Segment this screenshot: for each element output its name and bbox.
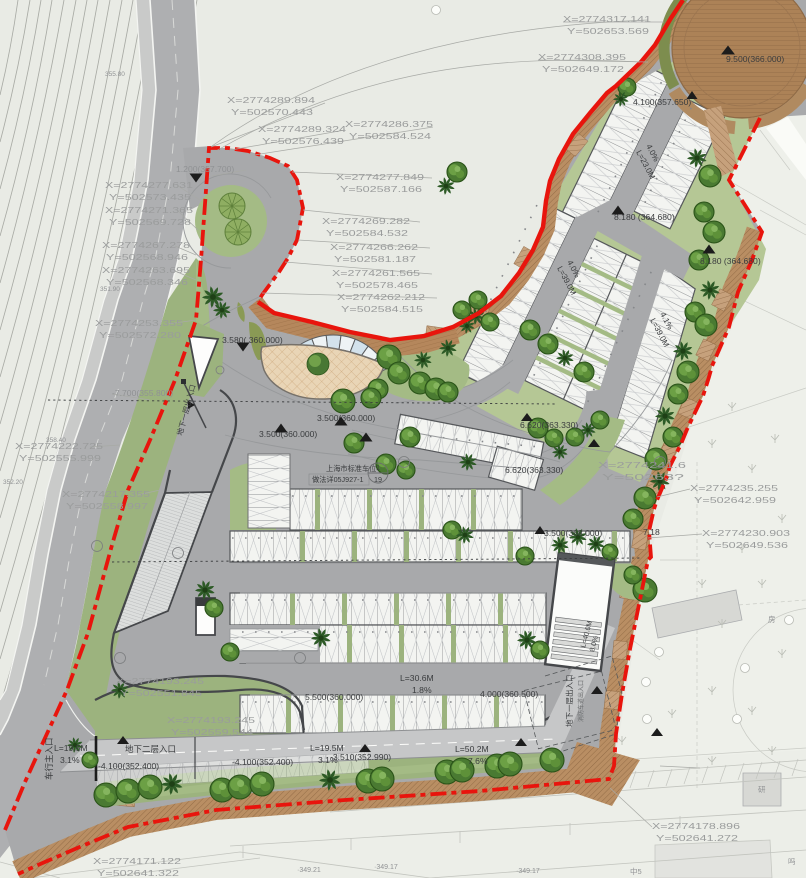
svg-text:Y=502576.439: Y=502576.439 [262,136,344,146]
svg-text:X=2774235.255: X=2774235.255 [690,483,778,493]
svg-text:3.500(360.000): 3.500(360.000) [259,429,317,439]
svg-text:-4.100(352.400): -4.100(352.400) [98,761,159,771]
svg-text:Y=502570.443: Y=502570.443 [231,107,313,117]
svg-text:X=2774277.849: X=2774277.849 [336,172,424,182]
svg-text:X=2774263.695: X=2774263.695 [102,265,190,275]
svg-text:X=2774178.896: X=2774178.896 [652,821,740,831]
svg-text:X=2774193.245: X=2774193.245 [167,715,255,725]
svg-text:X=2774277.631: X=2774277.631 [105,180,193,190]
svg-text:6.620(363.330): 6.620(363.330) [520,420,578,430]
svg-text:X=2774317.141: X=2774317.141 [563,14,651,24]
svg-text:Y=502573.435: Y=502573.435 [109,192,191,202]
svg-text:7.18: 7.18 [643,527,660,537]
svg-text:地下二层入口: 地下二层入口 [125,744,176,754]
svg-text:Y=502572.280: Y=502572.280 [99,330,181,340]
svg-text:Y=502584.515: Y=502584.515 [341,304,423,314]
svg-text:Y=502555.999: Y=502555.999 [19,453,101,463]
svg-text:4.100(357.650): 4.100(357.650) [633,97,691,107]
svg-text:6.620(363.330): 6.620(363.330) [505,465,563,475]
svg-text:Y=502578.465: Y=502578.465 [336,280,418,290]
svg-text:352.20: 352.20 [3,479,23,486]
svg-text:X=2774289.894: X=2774289.894 [227,95,315,105]
svg-text:Y=502649.536: Y=502649.536 [706,540,788,550]
svg-text:研: 研 [758,785,766,794]
svg-text:Y=502581.187: Y=502581.187 [334,254,416,264]
svg-text:Y=50263?: Y=50263? [602,472,685,482]
svg-text:Y=502559.544: Y=502559.544 [171,727,253,737]
svg-text:X=2774271.365: X=2774271.365 [105,205,193,215]
svg-text:·349.17: ·349.17 [374,864,398,871]
svg-text:3.580( 360.000): 3.580( 360.000) [222,335,283,345]
svg-text:Y=502587.166: Y=502587.166 [340,184,422,194]
svg-text:358.40: 358.40 [46,437,66,444]
svg-text:Y=502584.524: Y=502584.524 [349,131,431,141]
svg-text:9.500(366.000): 9.500(366.000) [726,54,784,64]
svg-text:车行主入口: 车行主入口 [44,737,54,780]
svg-text:X=2774262.212: X=2774262.212 [337,292,425,302]
svg-text:X=2774308.395: X=2774308.395 [538,52,626,62]
svg-text:-7.700(355.800): -7.700(355.800) [112,388,173,398]
svg-text:X=2774261.565: X=2774261.565 [332,268,420,278]
svg-text:1: 1 [376,463,380,472]
svg-text:5.500(360.000): 5.500(360.000) [305,692,363,702]
svg-text:X=2774193.245: X=2774193.245 [116,676,204,686]
svg-text:中5: 中5 [630,866,642,876]
svg-text:Y=502558.997: Y=502558.997 [66,501,148,511]
svg-text:7.6%: 7.6% [468,756,488,766]
svg-text:房: 房 [768,614,776,624]
svg-text:-3.510(352.990): -3.510(352.990) [330,752,391,762]
svg-text:Y=502641.272: Y=502641.272 [656,833,738,843]
svg-text:Y=502641.322: Y=502641.322 [97,868,179,878]
svg-text:3.500(368.000): 3.500(368.000) [544,528,602,538]
svg-text:X=2774286.375: X=2774286.375 [345,119,433,129]
svg-text:8.180 (364.680): 8.180 (364.680) [700,256,761,266]
svg-text:3.1%: 3.1% [60,755,80,765]
svg-text:X=2774267.278: X=2774267.278 [102,240,190,250]
svg-text:Y=502569.728: Y=502569.728 [109,217,191,227]
svg-text:19: 19 [374,475,382,484]
svg-text:X=2774269.282: X=2774269.282 [322,216,410,226]
svg-text:Y=502551.845: Y=502551.845 [120,688,202,698]
svg-text:1.200(357.700): 1.200(357.700) [176,164,234,174]
svg-text:Y=502642.959: Y=502642.959 [694,495,776,505]
svg-text:1.8%: 1.8% [412,685,432,695]
svg-text:Y=502649.172: Y=502649.172 [542,64,624,74]
svg-text:地下一层出入口: 地下一层出入口 [564,675,574,728]
svg-text:X=2774289.324: X=2774289.324 [258,124,346,134]
svg-text:X=2774253.355: X=2774253.355 [95,318,183,328]
svg-text:X=2774230.903: X=2774230.903 [702,528,790,538]
svg-text:X=2774266.262: X=2774266.262 [330,242,418,252]
svg-text:L=19.5M: L=19.5M [54,743,88,753]
svg-text:Y=502584.532: Y=502584.532 [326,228,408,238]
svg-text:351.90: 351.90 [100,286,120,293]
svg-text:X=2774241.6: X=2774241.6 [598,460,686,470]
svg-text:·349.17: ·349.17 [516,868,540,875]
svg-text:L=30.6M: L=30.6M [400,673,434,683]
svg-text:做法详05J927-1: 做法详05J927-1 [312,475,364,484]
svg-text:L=50.2M: L=50.2M [455,744,489,754]
svg-text:Y=502568.946: Y=502568.946 [106,252,188,262]
svg-text:-4.100(352.400): -4.100(352.400) [232,757,293,767]
svg-text:·349.21: ·349.21 [297,867,321,874]
svg-text:X=2774171.122: X=2774171.122 [93,856,181,866]
svg-text:355.80: 355.80 [105,71,125,78]
svg-text:Y=502653.569: Y=502653.569 [567,26,649,36]
svg-text:4.000(360.500): 4.000(360.500) [480,689,538,699]
svg-text:消防车道出入口: 消防车道出入口 [577,680,585,722]
svg-text:X=2774217.355: X=2774217.355 [62,489,150,499]
svg-text:吗: 吗 [788,857,796,866]
svg-text:3.500(360.000): 3.500(360.000) [317,413,375,423]
